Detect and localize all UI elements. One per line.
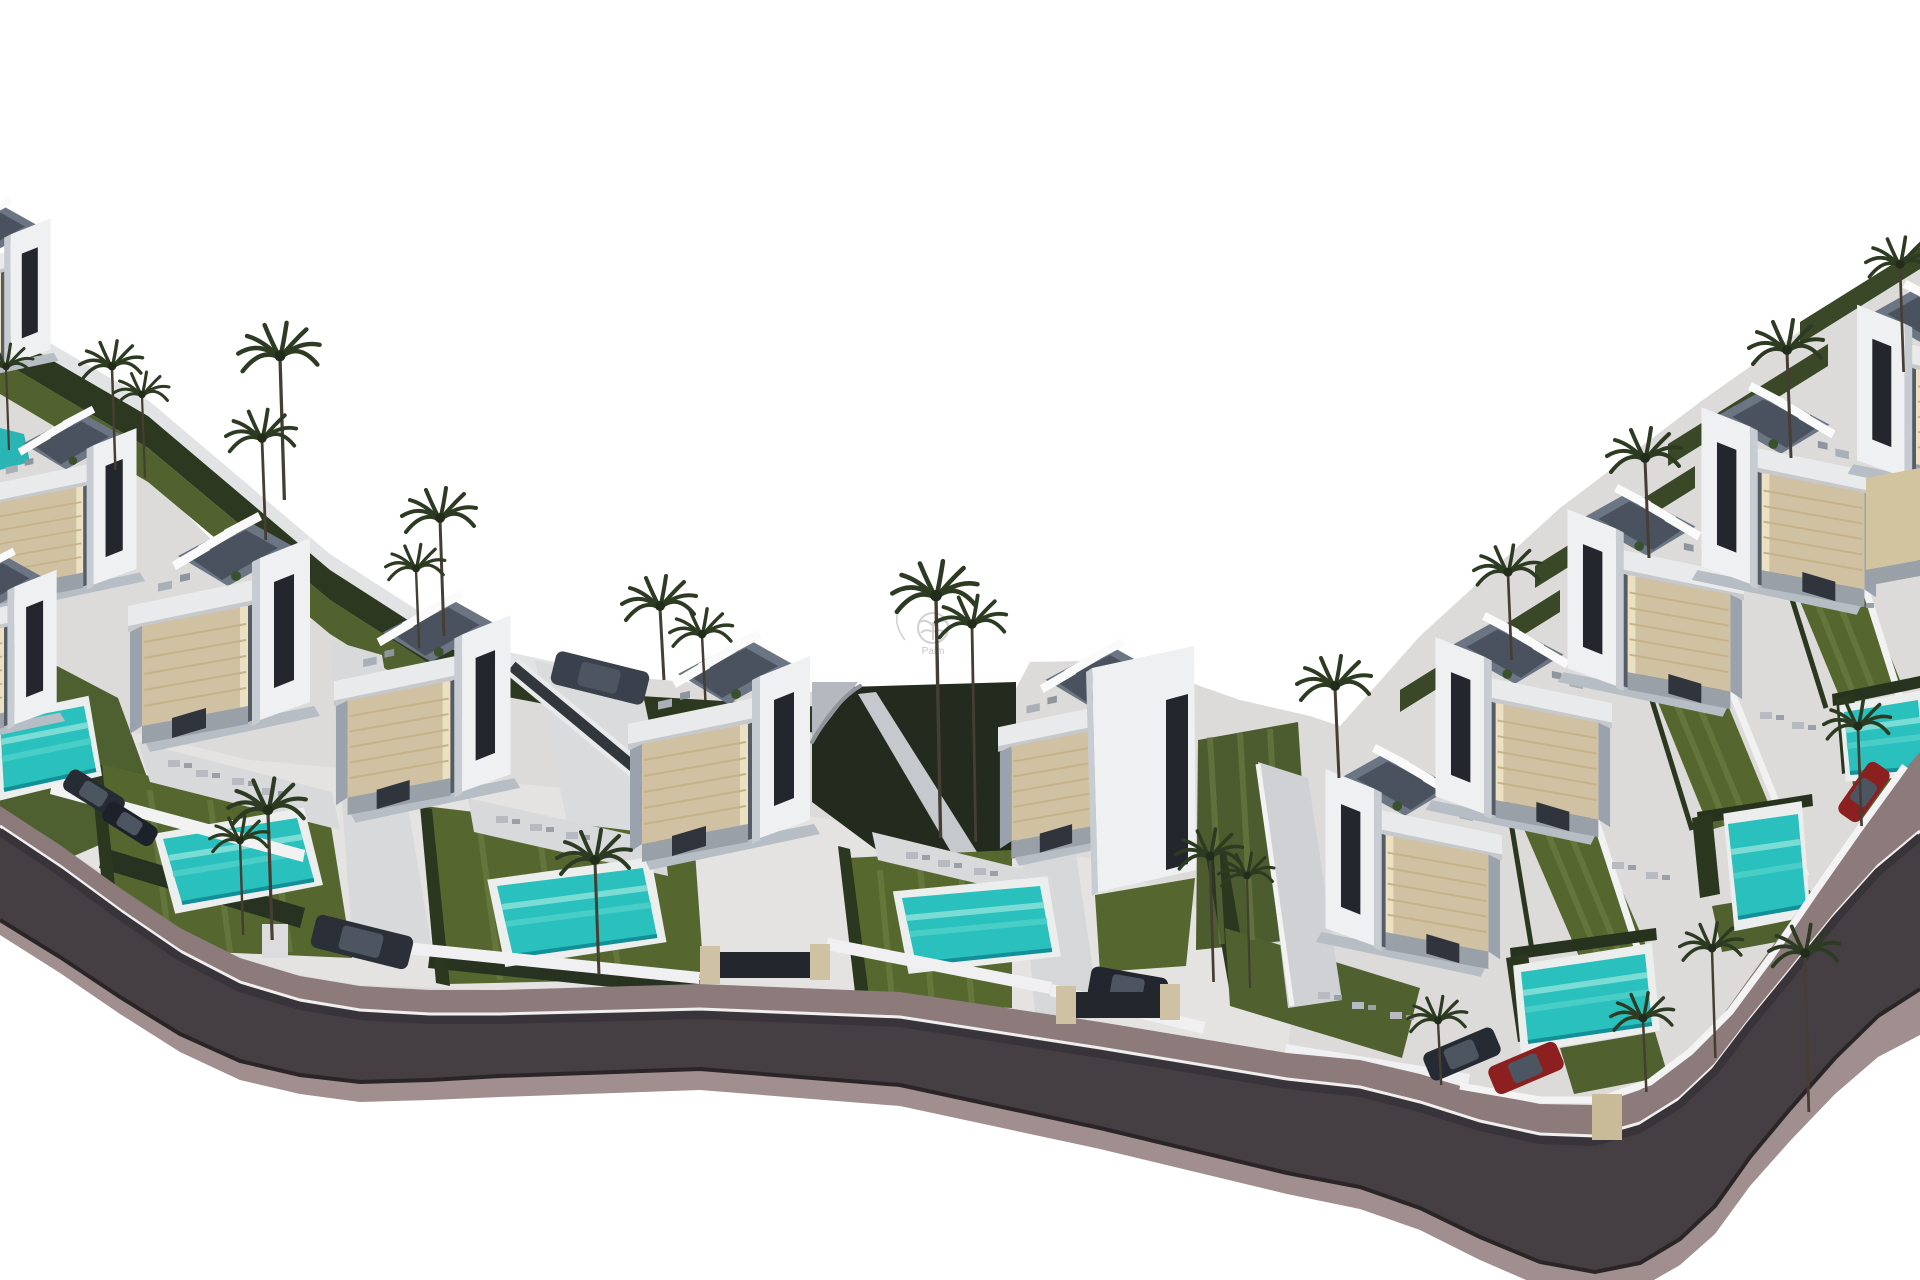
svg-text:Palm: Palm	[922, 646, 945, 657]
